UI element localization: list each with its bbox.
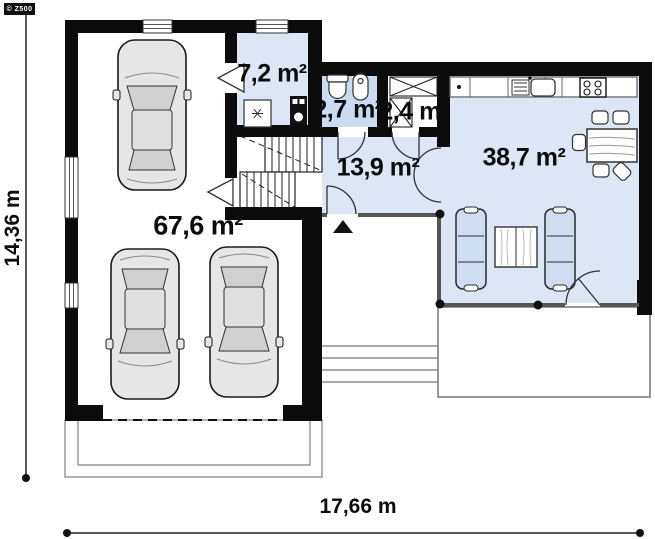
- hall-area-label: 13,9 m²: [337, 154, 420, 183]
- counter-dot: [457, 85, 461, 89]
- driveway-apron: [65, 420, 322, 477]
- width-dimension-label: 17,66 m: [319, 495, 396, 519]
- terrace: [438, 307, 650, 397]
- porch-steps: [322, 346, 438, 382]
- bidet-drain: [358, 79, 363, 84]
- bathroom-area-label: 2,7 m²: [313, 96, 382, 125]
- floorplan-drawing: [0, 0, 655, 539]
- garage-door-swing: [208, 179, 233, 206]
- floorplan-page: © Z500 67,6 m² 7,2 m² 2,7 m² 2,4 m² 13,9…: [0, 0, 655, 539]
- toilet-tank: [327, 75, 348, 82]
- garage-area-label: 67,6 m²: [153, 211, 243, 242]
- coffee-table: [495, 227, 537, 267]
- entrance-arrow: [333, 220, 353, 233]
- kitchen-counter: [450, 76, 637, 97]
- wardrobe-area-label: 2,4 m²: [379, 98, 448, 127]
- boiler-room-area-label: 7,2 m²: [237, 60, 306, 89]
- staircase: [240, 133, 322, 210]
- height-dimension-label: 14,36 m: [1, 189, 25, 266]
- kitchen-hob: [580, 78, 606, 97]
- boiler-icon: [290, 96, 307, 125]
- brand-badge: © Z500: [4, 3, 35, 15]
- living-kitchen-area-label: 38,7 m²: [483, 144, 566, 173]
